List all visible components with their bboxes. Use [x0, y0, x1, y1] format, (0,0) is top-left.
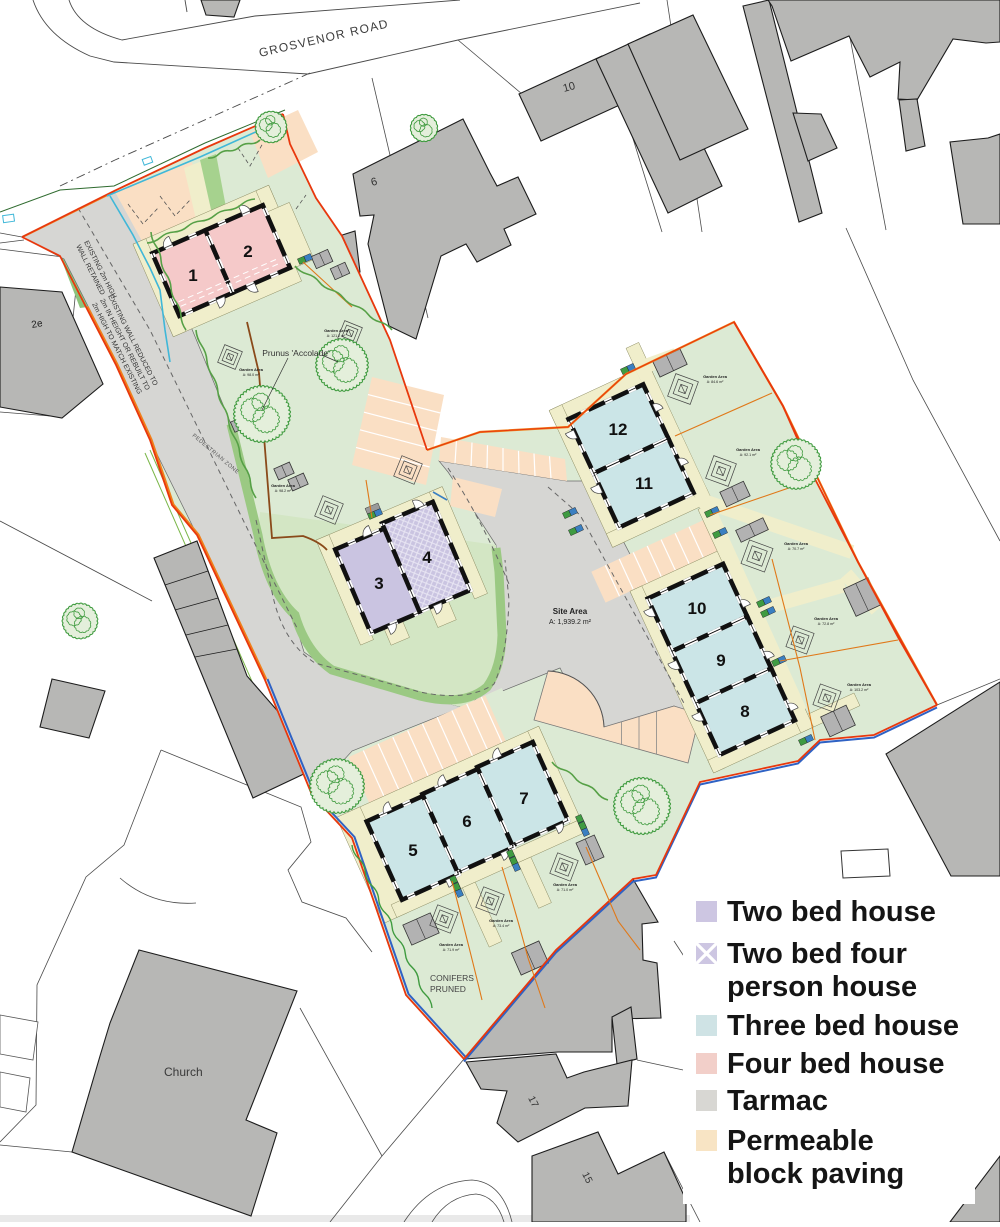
svg-text:Garden Area: Garden Area: [847, 682, 872, 687]
svg-text:A: 70.7 m²: A: 70.7 m²: [788, 547, 805, 551]
svg-text:1: 1: [188, 266, 197, 285]
svg-text:Garden Area: Garden Area: [553, 882, 578, 887]
svg-text:Four bed house: Four bed house: [727, 1048, 945, 1080]
svg-text:Garden Area: Garden Area: [736, 447, 761, 452]
svg-text:PRUNED: PRUNED: [430, 984, 466, 994]
svg-text:7: 7: [519, 789, 528, 808]
svg-text:Site Area: Site Area: [553, 607, 588, 616]
svg-text:Garden Area: Garden Area: [324, 328, 349, 333]
svg-text:Three bed house: Three bed house: [727, 1010, 959, 1042]
svg-text:4: 4: [422, 548, 432, 567]
svg-text:2: 2: [243, 242, 252, 261]
svg-text:Garden Area: Garden Area: [439, 942, 464, 947]
svg-text:A: 92.1 m²: A: 92.1 m²: [740, 453, 757, 457]
svg-text:Church: Church: [164, 1065, 203, 1079]
svg-text:Permeable: Permeable: [727, 1125, 874, 1157]
svg-text:Garden Area: Garden Area: [784, 541, 809, 546]
svg-text:A: 1,939.2 m²: A: 1,939.2 m²: [549, 619, 592, 626]
svg-text:Garden Area: Garden Area: [489, 918, 514, 923]
svg-text:5: 5: [408, 841, 417, 860]
svg-text:Garden Area: Garden Area: [814, 616, 839, 621]
svg-text:person house: person house: [727, 971, 917, 1003]
svg-text:Garden Area: Garden Area: [239, 367, 264, 372]
svg-text:Prunus 'Accolade': Prunus 'Accolade': [262, 348, 330, 358]
svg-text:A: 73.4 m²: A: 73.4 m²: [493, 924, 510, 928]
svg-text:block paving: block paving: [727, 1158, 904, 1190]
svg-text:Tarmac: Tarmac: [727, 1085, 828, 1117]
svg-text:Two bed house: Two bed house: [727, 896, 936, 928]
svg-text:A: 71.9 m²: A: 71.9 m²: [443, 948, 460, 952]
svg-text:12: 12: [609, 420, 628, 439]
svg-text:Two bed four: Two bed four: [727, 938, 907, 970]
svg-text:A: 71.0 m²: A: 71.0 m²: [557, 888, 574, 892]
svg-text:Garden Area: Garden Area: [271, 483, 296, 488]
svg-text:10: 10: [688, 599, 707, 618]
svg-text:3: 3: [374, 574, 383, 593]
svg-text:A: 98.2 m²: A: 98.2 m²: [275, 489, 292, 493]
svg-text:A: 84.6 m²: A: 84.6 m²: [707, 380, 724, 384]
svg-text:CONIFERS: CONIFERS: [430, 973, 474, 983]
svg-text:A: 121.2 m²: A: 121.2 m²: [327, 334, 346, 338]
svg-text:11: 11: [635, 474, 653, 493]
svg-text:8: 8: [740, 702, 749, 721]
svg-text:A: 103.2 m²: A: 103.2 m²: [850, 688, 869, 692]
svg-text:Garden Area: Garden Area: [703, 374, 728, 379]
svg-text:A: 98.0 m²: A: 98.0 m²: [243, 373, 260, 377]
svg-text:9: 9: [716, 651, 725, 670]
svg-text:A: 72.8 m²: A: 72.8 m²: [818, 622, 835, 626]
svg-text:6: 6: [462, 812, 471, 831]
